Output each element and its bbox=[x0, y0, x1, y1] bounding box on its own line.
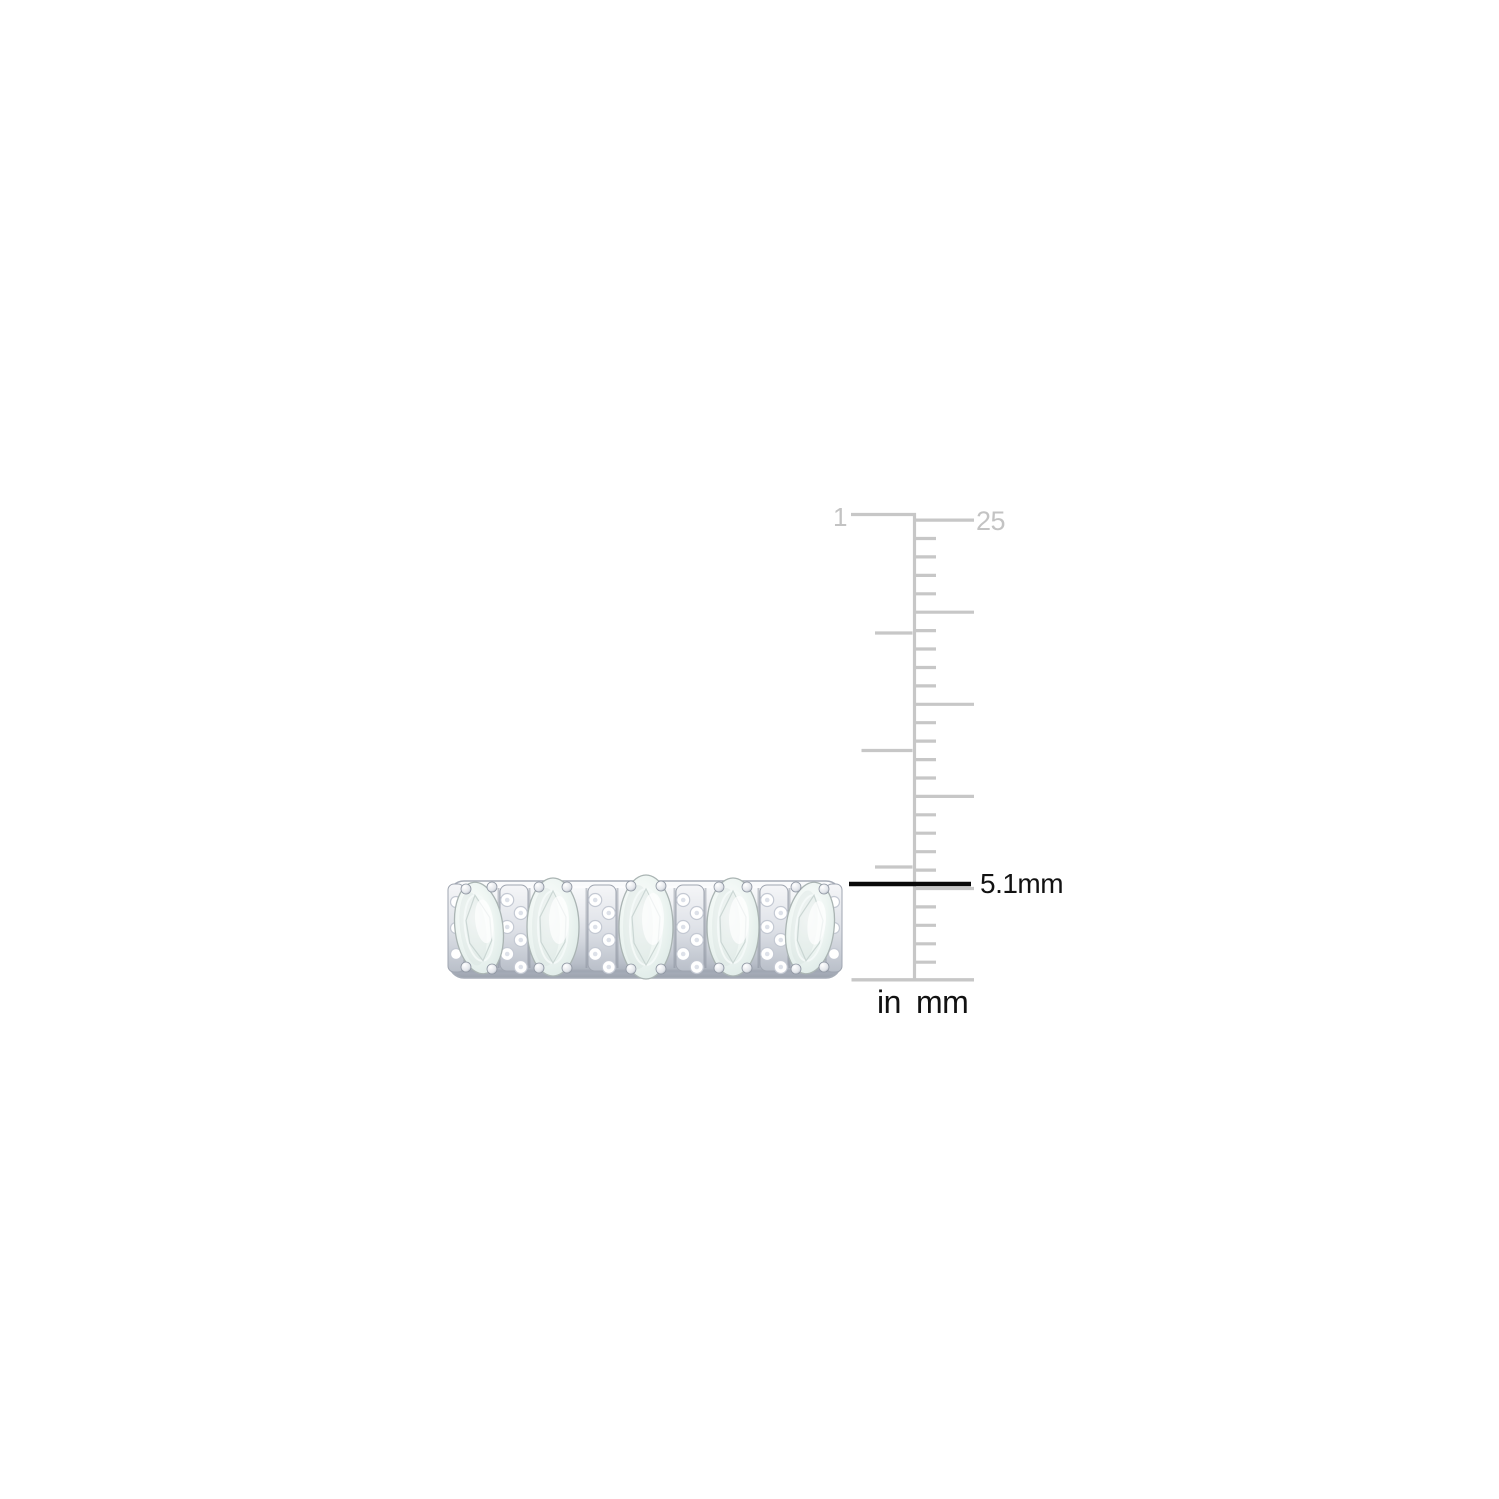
mm-ticks bbox=[915, 520, 975, 962]
scene-graphics bbox=[0, 0, 1499, 1499]
ruler-unit-mm-label: mm bbox=[916, 986, 968, 1018]
ring-photo bbox=[448, 875, 842, 979]
oval-stone-4 bbox=[707, 878, 759, 976]
product-image-canvas: 1 25 5.1mm in mm bbox=[0, 0, 1499, 1499]
ruler bbox=[851, 513, 974, 981]
ruler-unit-inch-label: in bbox=[877, 986, 901, 1018]
diamond-spacer-2 bbox=[587, 885, 618, 974]
diamond-spacer-3 bbox=[675, 885, 706, 974]
measurement-value-label: 5.1mm bbox=[980, 870, 1063, 898]
ruler-inch-top-label: 1 bbox=[833, 504, 847, 530]
oval-stone-2 bbox=[527, 878, 579, 976]
diamond-spacer-4 bbox=[759, 885, 790, 974]
oval-stone-3-center bbox=[619, 875, 673, 979]
ruler-mm-top-label: 25 bbox=[976, 508, 1005, 535]
